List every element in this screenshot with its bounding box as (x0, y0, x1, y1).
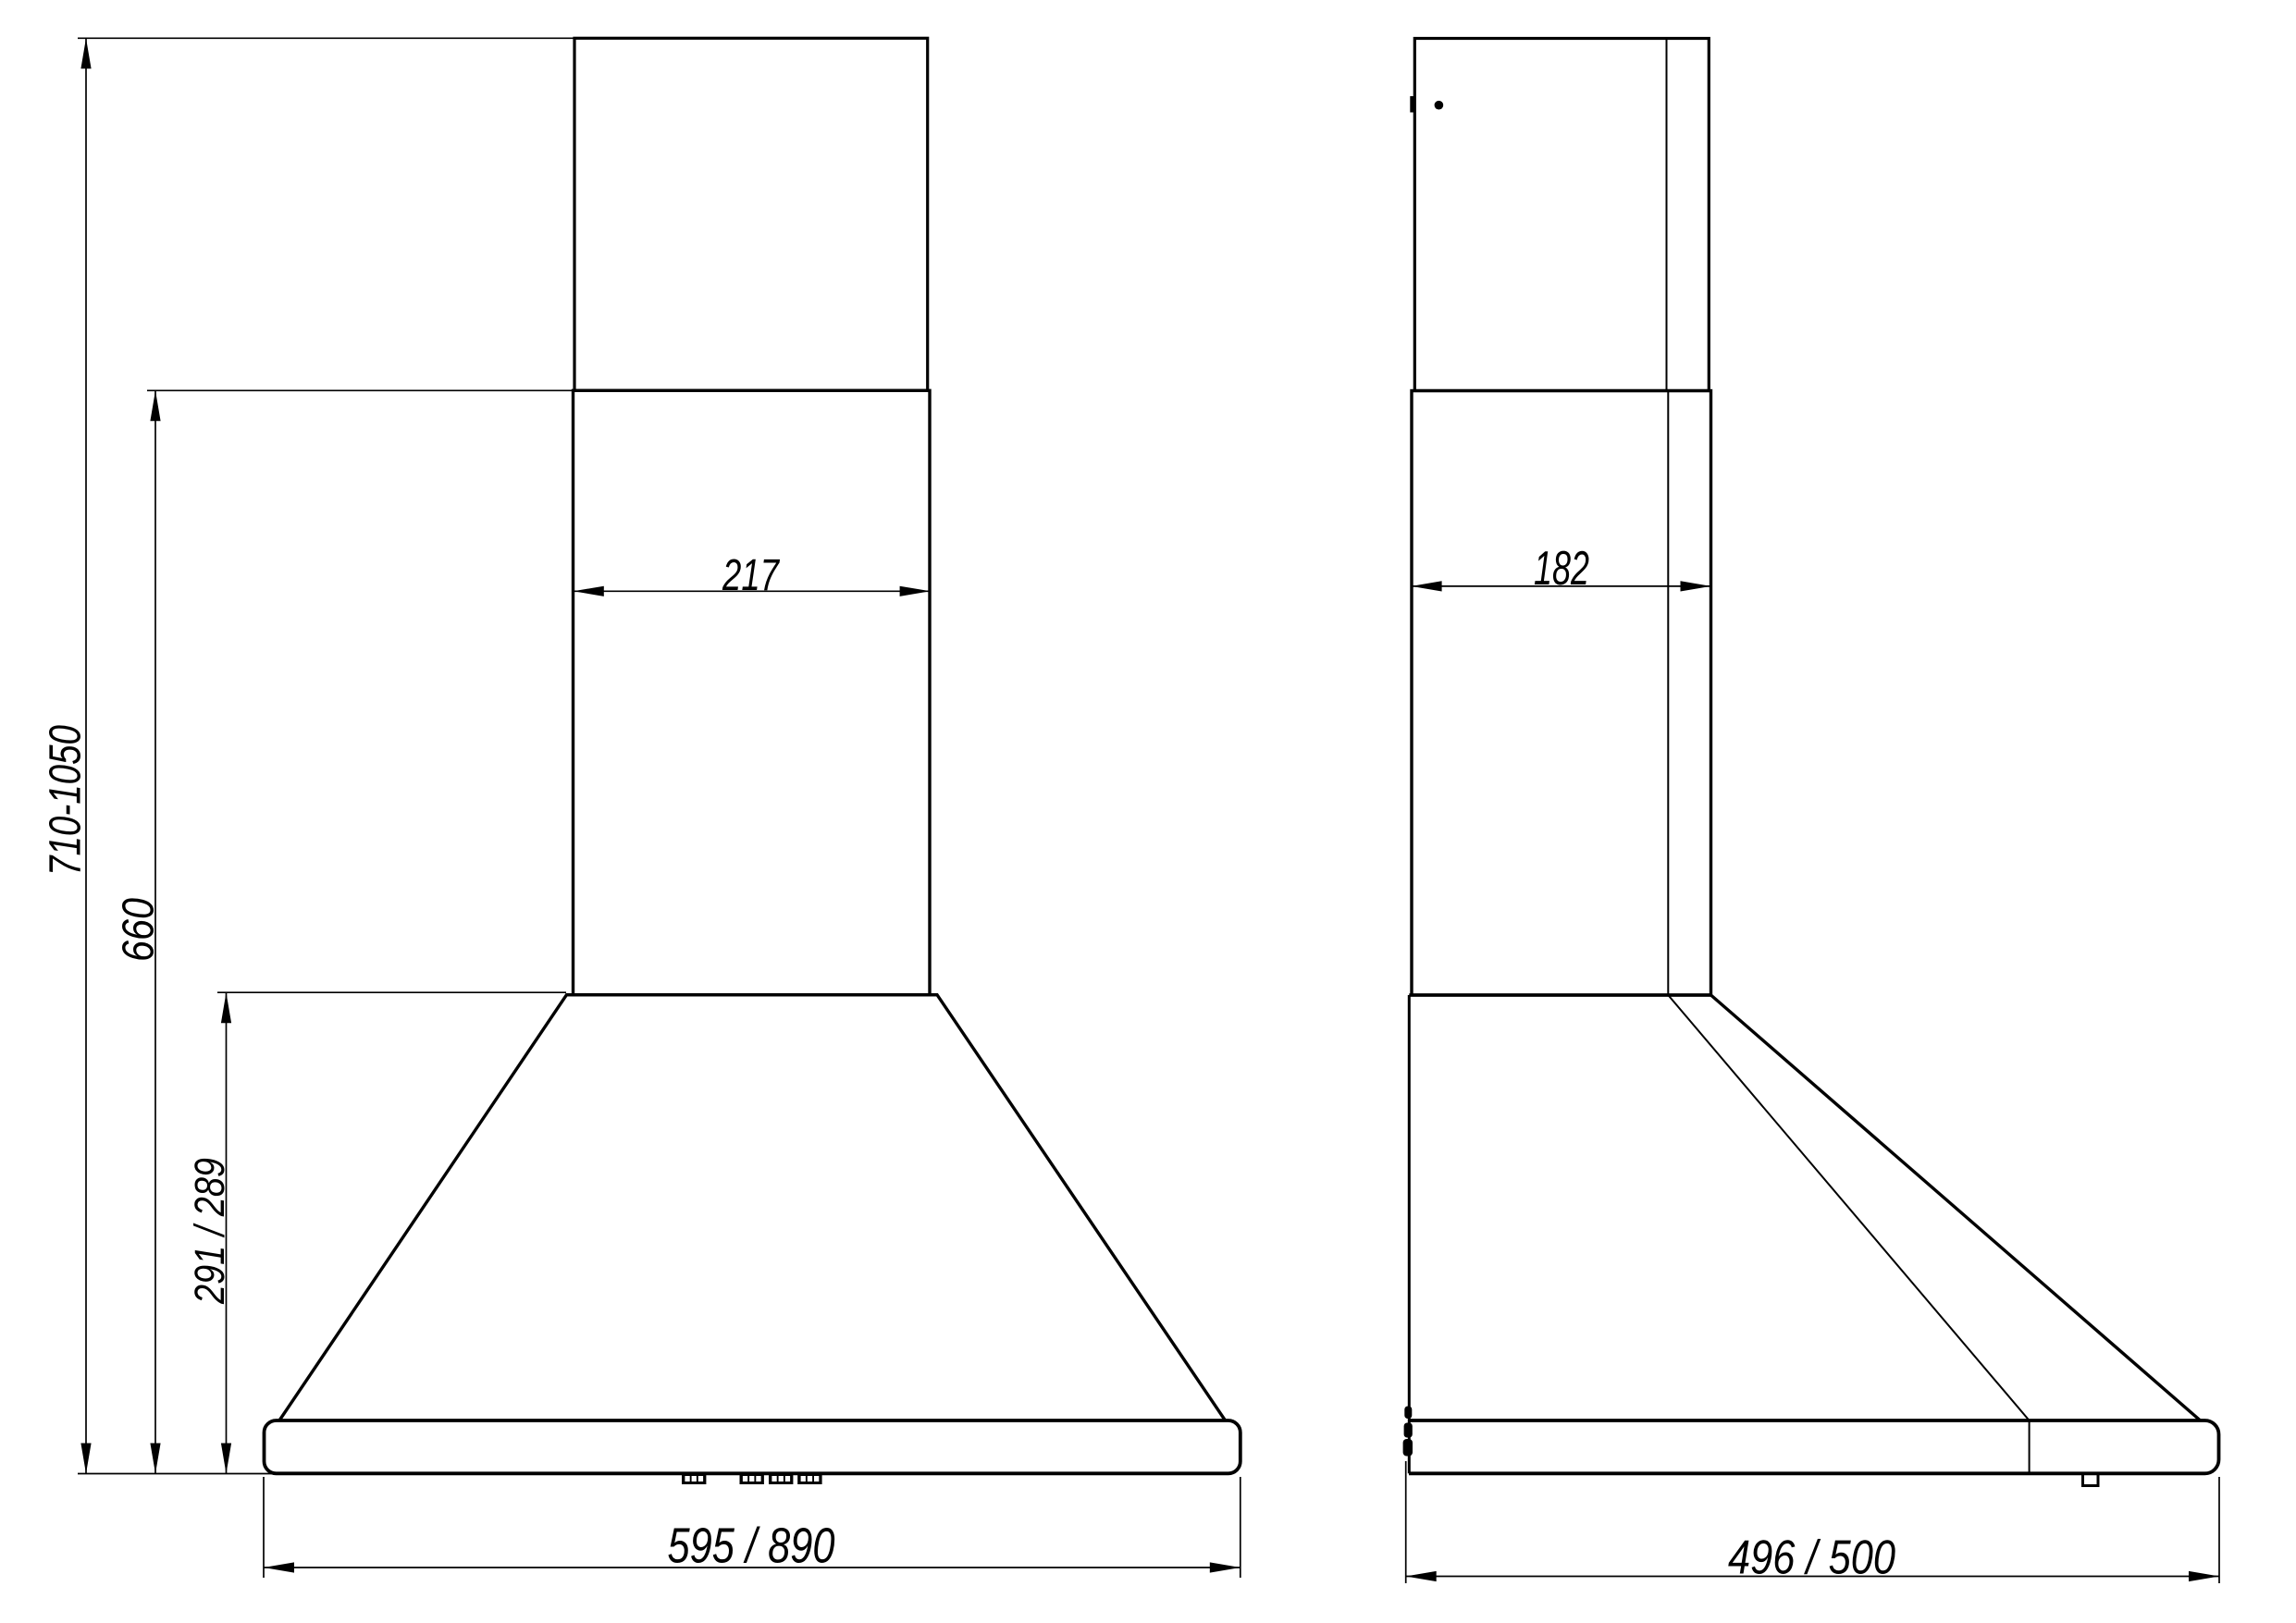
svg-text:710-1050: 710-1050 (42, 725, 91, 876)
svg-text:182: 182 (1534, 542, 1589, 596)
svg-text:595 / 890: 595 / 890 (668, 1518, 835, 1574)
svg-text:217: 217 (722, 551, 781, 600)
svg-text:291 / 289: 291 / 289 (186, 1158, 233, 1305)
svg-text:496 / 500: 496 / 500 (1728, 1531, 1895, 1585)
svg-text:660: 660 (115, 898, 164, 962)
